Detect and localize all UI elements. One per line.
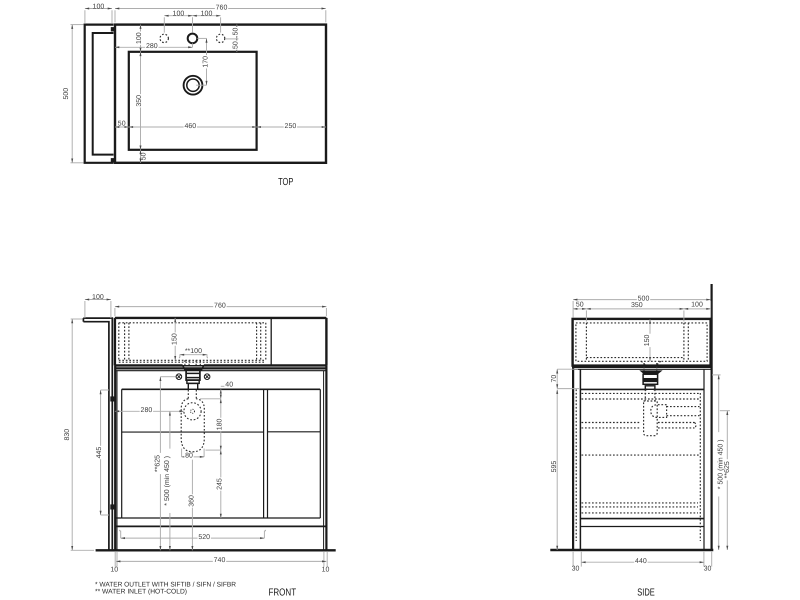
svg-text:280: 280 bbox=[141, 407, 153, 414]
svg-text:180: 180 bbox=[216, 419, 223, 431]
svg-text:**625: **625 bbox=[724, 461, 731, 478]
svg-text:245: 245 bbox=[216, 478, 223, 490]
svg-text:50: 50 bbox=[140, 152, 147, 160]
svg-text:TOP: TOP bbox=[278, 177, 293, 188]
svg-text:**100: **100 bbox=[185, 348, 202, 355]
svg-text:100: 100 bbox=[173, 10, 185, 17]
svg-text:50: 50 bbox=[576, 302, 584, 309]
svg-text:30: 30 bbox=[704, 566, 712, 573]
svg-text:100: 100 bbox=[201, 10, 213, 17]
svg-text:460: 460 bbox=[184, 123, 196, 130]
svg-text:* 500 (min 450 ): * 500 (min 450 ) bbox=[163, 456, 171, 506]
svg-text:10: 10 bbox=[110, 567, 118, 574]
svg-text:250: 250 bbox=[285, 123, 297, 130]
svg-text:50: 50 bbox=[118, 120, 126, 127]
svg-text:70: 70 bbox=[551, 375, 558, 383]
svg-text:760: 760 bbox=[216, 4, 228, 11]
svg-text:170: 170 bbox=[202, 56, 209, 68]
svg-text:350: 350 bbox=[631, 302, 643, 309]
svg-text:100: 100 bbox=[93, 4, 105, 11]
svg-text:760: 760 bbox=[214, 302, 226, 309]
svg-text:500: 500 bbox=[63, 88, 70, 100]
svg-text:280: 280 bbox=[146, 43, 158, 50]
svg-text:100: 100 bbox=[136, 32, 143, 44]
svg-text:360: 360 bbox=[188, 495, 195, 507]
svg-text:10: 10 bbox=[322, 567, 330, 574]
svg-text:150: 150 bbox=[171, 333, 178, 345]
svg-text:100: 100 bbox=[691, 302, 703, 309]
svg-text:80: 80 bbox=[185, 453, 193, 460]
svg-text:**625: **625 bbox=[154, 455, 161, 472]
svg-text:740: 740 bbox=[214, 557, 226, 564]
svg-text:440: 440 bbox=[635, 558, 647, 565]
svg-text:30: 30 bbox=[572, 566, 580, 573]
svg-text:520: 520 bbox=[198, 534, 210, 541]
svg-text:445: 445 bbox=[96, 447, 103, 459]
svg-text:830: 830 bbox=[64, 429, 71, 441]
svg-text:150: 150 bbox=[644, 334, 651, 346]
svg-text:** WATER INLET (HOT-COLD): ** WATER INLET (HOT-COLD) bbox=[95, 589, 187, 596]
svg-text:40: 40 bbox=[225, 382, 233, 389]
svg-text:50: 50 bbox=[232, 41, 239, 49]
svg-text:595: 595 bbox=[551, 461, 558, 473]
svg-text:350: 350 bbox=[136, 95, 143, 107]
svg-text:SIDE: SIDE bbox=[637, 588, 655, 599]
svg-text:100: 100 bbox=[92, 294, 104, 301]
svg-text:50: 50 bbox=[232, 28, 239, 36]
svg-text:FRONT: FRONT bbox=[269, 588, 297, 599]
